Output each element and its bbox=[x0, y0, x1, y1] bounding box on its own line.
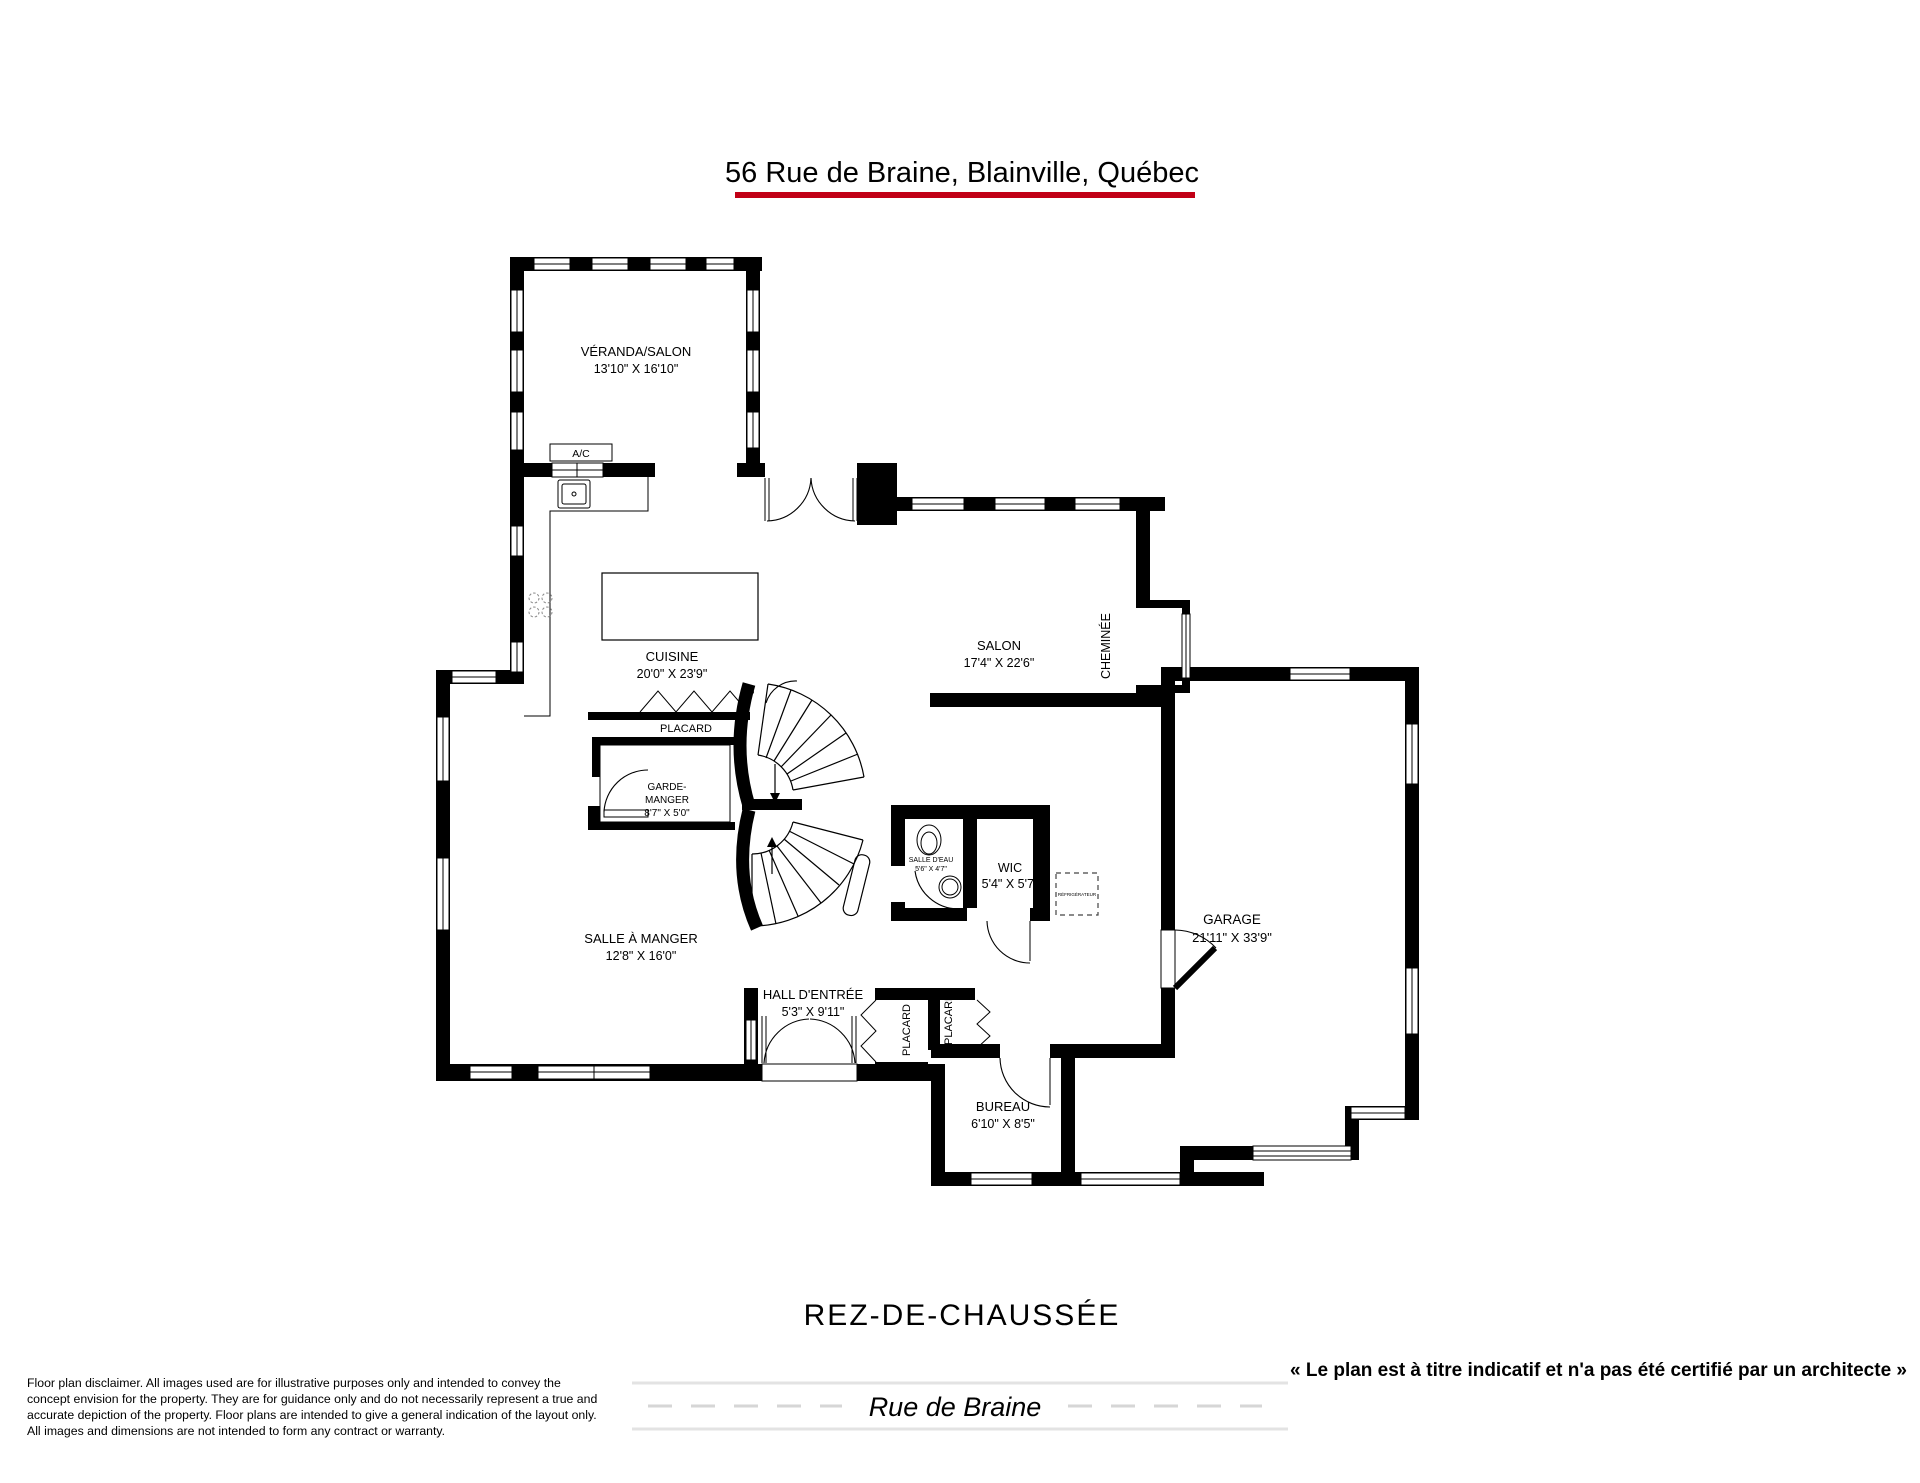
floor-level-label: REZ-DE-CHAUSSÉE bbox=[804, 1299, 1121, 1332]
salle-eau-label: SALLE D'EAU bbox=[909, 857, 954, 864]
placard-hall-2-label: PLACARD bbox=[943, 993, 955, 1045]
salon-label: SALON bbox=[977, 638, 1021, 653]
street-graphic: Rue de Braine bbox=[632, 1383, 1288, 1429]
salle-eau-door bbox=[915, 871, 958, 909]
salle-a-manger-label: SALLE À MANGER bbox=[584, 931, 697, 946]
stove-burners bbox=[529, 593, 552, 617]
stair-down-arrow bbox=[770, 764, 780, 803]
garde-manger-dims: 8'7" X 5'0" bbox=[644, 808, 690, 819]
veranda-label: VÉRANDA/SALON bbox=[581, 344, 692, 359]
garde-manger-door bbox=[604, 770, 648, 817]
cuisine-dims: 20'0" X 23'9" bbox=[637, 667, 708, 681]
refrigerator-label: RÉFRIGÉRATEUR bbox=[1058, 891, 1097, 897]
closet-hanger-rail bbox=[640, 691, 748, 712]
p-door-label: P bbox=[747, 688, 754, 700]
placard-cuisine-label: PLACARD bbox=[660, 723, 712, 735]
disclaimer-line-3: accurate depiction of the property. Floo… bbox=[27, 1408, 597, 1422]
architect-quote: « Le plan est à titre indicatif et n'a p… bbox=[1290, 1360, 1907, 1381]
disclaimer-line-4: All images and dimensions are not intend… bbox=[27, 1424, 445, 1438]
cheminee-label: CHEMINÉE bbox=[1098, 613, 1113, 679]
garde-manger-label-1: GARDE- bbox=[648, 782, 687, 793]
garage-dims: 21'11" X 33'9" bbox=[1192, 930, 1272, 945]
salon-dims: 17'4" X 22'6" bbox=[964, 656, 1035, 670]
walls bbox=[436, 257, 1419, 1186]
disclaimer-text: Floor plan disclaimer. All images used a… bbox=[27, 1376, 597, 1438]
hall-entree-label: HALL D'ENTRÉE bbox=[763, 987, 864, 1002]
floor-plan-page: 56 Rue de Braine, Blainville, Québec bbox=[0, 0, 1920, 1483]
toilet-icon bbox=[917, 825, 941, 855]
floor-plan-canvas: 56 Rue de Braine, Blainville, Québec bbox=[0, 0, 1920, 1483]
curved-staircase bbox=[740, 684, 871, 928]
disclaimer-line-2: concept envision for the property. They … bbox=[27, 1392, 597, 1406]
street-name-label: Rue de Braine bbox=[869, 1392, 1042, 1422]
veranda-dims: 13'10" X 16'10" bbox=[594, 362, 679, 376]
title-underline bbox=[735, 192, 1195, 198]
bifold-closet-door-1 bbox=[861, 1000, 876, 1062]
wic-label: WIC bbox=[998, 861, 1022, 875]
salle-a-manger-dims: 12'8" X 16'0" bbox=[606, 949, 677, 963]
entry-double-door bbox=[762, 1016, 857, 1081]
cuisine-label: CUISINE bbox=[646, 649, 699, 664]
windows bbox=[437, 258, 1418, 1185]
bifold-closet-door-2 bbox=[977, 1000, 990, 1048]
placard-hall-1-label: PLACARD bbox=[901, 1004, 913, 1056]
garde-manger-label-2: MANGER bbox=[645, 795, 689, 806]
kitchen-fixtures bbox=[524, 444, 758, 822]
kitchen-island bbox=[602, 573, 758, 640]
wic-dims: 5'4" X 5'7" bbox=[982, 877, 1039, 891]
disclaimer-line-1: Floor plan disclaimer. All images used a… bbox=[27, 1376, 561, 1390]
lower-flight-treads bbox=[752, 822, 863, 926]
kitchen-sink bbox=[558, 480, 590, 508]
page-title: 56 Rue de Braine, Blainville, Québec bbox=[725, 157, 1199, 189]
garage-label: GARAGE bbox=[1203, 912, 1261, 927]
veranda-french-doors bbox=[765, 478, 857, 521]
stair-up-arrow bbox=[767, 837, 777, 874]
bureau-dims: 6'10" X 8'5" bbox=[971, 1117, 1035, 1131]
wic-door bbox=[987, 921, 1030, 963]
kitchen-counter bbox=[524, 477, 648, 716]
refrigerator-dashed-box: RÉFRIGÉRATEUR bbox=[1056, 873, 1098, 915]
salle-eau-dims: 5'6" X 4'7" bbox=[915, 866, 947, 873]
bureau-label: BUREAU bbox=[976, 1099, 1030, 1114]
hall-entree-dims: 5'3" X 9'11" bbox=[782, 1005, 845, 1019]
ac-label: A/C bbox=[572, 448, 590, 460]
